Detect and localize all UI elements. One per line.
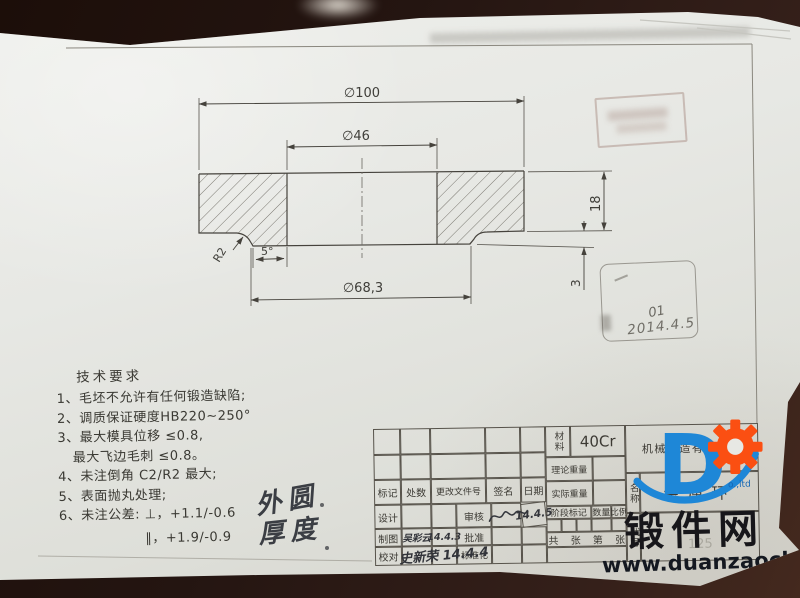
revision-cell: [430, 453, 485, 479]
revision-cell: [400, 454, 430, 479]
draft-label: 制图: [375, 529, 402, 547]
frame-top-line: [66, 44, 752, 48]
handwritten-note-thickness: 厚度: [256, 508, 324, 551]
design-name-cell: [401, 504, 431, 528]
header-count: 处数: [401, 479, 431, 504]
tech-req-title: 技术要求: [76, 360, 374, 386]
frame-bottom-line: [38, 556, 372, 561]
dim-text-3: 3: [569, 279, 583, 287]
header-date: 日期: [521, 477, 546, 502]
logo-sub-text: o.,ltd: [728, 480, 751, 491]
dim-text-18: 18: [589, 195, 604, 212]
gear-icon: [708, 419, 763, 474]
material-label-cell: 材料: [545, 426, 570, 457]
theoretical-weight-label: 理论重量: [545, 457, 592, 482]
dim-text-d46: ∅46: [342, 129, 370, 144]
drawing-sheet: ∅100 ∅46 ∅68,3 18 3 5° R2 技术要求 1、毛坯不允许有任…: [0, 0, 800, 598]
dim-line-d68: [251, 297, 471, 300]
dim-text-5deg: 5°: [261, 245, 274, 258]
approve-date-cell: [522, 526, 547, 544]
stamp-smudge: [601, 315, 612, 331]
dim-line-d46: [287, 145, 437, 147]
desk-light-reflection: [296, 0, 380, 20]
header-signature: 签名: [486, 478, 521, 504]
design-label: 设计: [374, 505, 401, 529]
revision-cell: [373, 429, 400, 455]
design-date-cell: [431, 504, 456, 528]
stage-box: [561, 519, 576, 532]
stamp-tick-mark: [612, 268, 628, 282]
tech-req-list: 1、毛坯不允许有任何锻造缺陷; 2、调质保证硬度HB220~250° 3、最大模…: [56, 384, 377, 550]
revision-cell: [373, 455, 400, 480]
revision-cell: [400, 428, 430, 454]
dim-text-d100: ∅100: [344, 86, 380, 101]
stamp-date: 2014.4.5: [626, 315, 695, 339]
revision-stamp: 01 2014.4.5: [599, 260, 698, 342]
revision-cell: [520, 426, 545, 452]
stage-mark-label: 阶段标记: [546, 506, 591, 520]
handwritten-dot: [325, 546, 329, 550]
review-signature-scribble: [486, 505, 528, 528]
dim-line-d100: [199, 101, 524, 104]
faint-stamp-mark: [616, 121, 667, 133]
material-label: 材料: [553, 431, 563, 452]
stage-box: [576, 519, 591, 532]
header-change-doc: 更改文件号: [431, 478, 486, 504]
revision-cell: [430, 427, 485, 454]
faint-stamp-mark: [607, 107, 668, 121]
handwritten-dot: [320, 503, 324, 507]
photo-of-forging-drawing: ∅100 ∅46 ∅68,3 18 3 5° R2 技术要求 1、毛坯不允许有任…: [0, 0, 800, 598]
watermark: D o.,ltd 锻件网: [598, 408, 800, 594]
stacked-sheet-edges: [640, 20, 791, 39]
dim-text-r2: R2: [211, 245, 230, 264]
actual-weight-label: 实际重量: [546, 481, 593, 507]
frame-right-line: [752, 44, 757, 424]
revision-cell: [485, 453, 520, 479]
revision-cell: [485, 427, 520, 454]
header-mark: 标记: [374, 480, 401, 505]
dim-text-d68: ∅68,3: [343, 281, 383, 296]
leader-r2: [233, 237, 243, 250]
technical-requirements: 技术要求 1、毛坯不允许有任何锻造缺陷; 2、调质保证硬度HB220~250° …: [56, 360, 377, 550]
stage-box: [546, 519, 561, 532]
revision-cell: [520, 452, 545, 477]
standardize-date-cell: [522, 544, 547, 563]
dim-line-5deg: [256, 259, 284, 260]
faint-stamp: [594, 92, 687, 148]
part-cross-section: [199, 158, 524, 258]
